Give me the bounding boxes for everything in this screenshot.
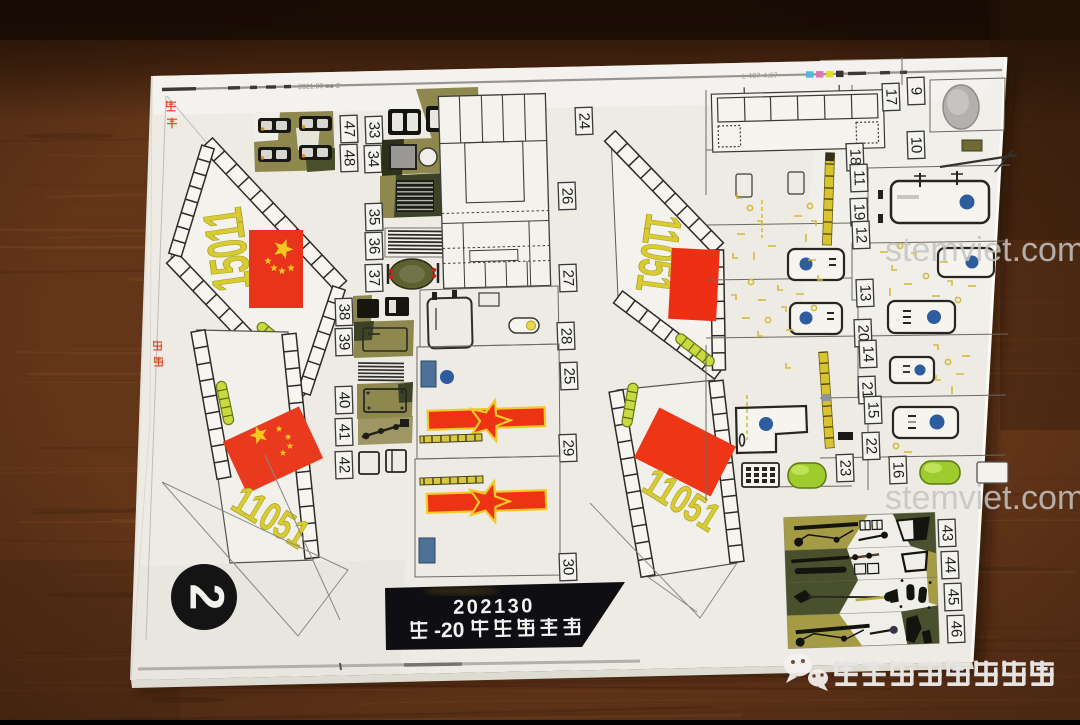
svg-text:42: 42 <box>335 456 353 473</box>
svg-text:40: 40 <box>335 391 353 408</box>
svg-text:11: 11 <box>850 170 868 186</box>
svg-text:23: 23 <box>836 459 854 476</box>
svg-text:43: 43 <box>938 524 956 541</box>
svg-text:16: 16 <box>889 461 907 478</box>
svg-text:10: 10 <box>907 136 925 153</box>
svg-text:44: 44 <box>941 556 959 573</box>
svg-text:stemviet.com: stemviet.com <box>885 479 1080 517</box>
svg-text:15: 15 <box>864 401 882 418</box>
svg-text:45: 45 <box>944 588 962 605</box>
svg-text:2021.30 ■■-2: 2021.30 ■■-2 <box>298 83 340 91</box>
svg-text:35: 35 <box>365 208 383 225</box>
svg-text:24: 24 <box>575 112 593 129</box>
svg-text:9: 9 <box>907 87 924 96</box>
svg-text:2: 2 <box>180 584 233 611</box>
svg-text:33: 33 <box>365 121 383 138</box>
svg-text:202130: 202130 <box>453 595 535 619</box>
svg-text:28: 28 <box>557 327 575 344</box>
svg-text:34: 34 <box>364 150 382 167</box>
svg-text:20: 20 <box>854 324 872 341</box>
svg-text:L 407-4.97: L 407-4.97 <box>742 71 778 81</box>
svg-text:27: 27 <box>559 269 577 286</box>
svg-text:-20: -20 <box>434 619 465 643</box>
svg-text:47: 47 <box>340 120 358 137</box>
svg-text:48: 48 <box>340 149 358 166</box>
svg-text:25: 25 <box>560 367 578 384</box>
svg-text:36: 36 <box>365 237 383 254</box>
svg-text:22: 22 <box>862 437 880 454</box>
svg-text:13: 13 <box>856 284 874 301</box>
svg-text:18: 18 <box>846 148 864 165</box>
svg-text:19: 19 <box>850 203 868 220</box>
svg-text:14: 14 <box>859 345 877 362</box>
svg-text:stemviet.com: stemviet.com <box>885 231 1080 269</box>
svg-text:46: 46 <box>947 620 965 637</box>
svg-text:41: 41 <box>335 423 353 440</box>
svg-text:30: 30 <box>559 558 577 575</box>
svg-text:12: 12 <box>852 226 870 243</box>
svg-text:17: 17 <box>882 88 900 105</box>
svg-text:26: 26 <box>558 187 576 204</box>
svg-text:39: 39 <box>335 333 353 350</box>
svg-text:29: 29 <box>559 439 577 456</box>
svg-text:37: 37 <box>365 269 383 286</box>
svg-text:38: 38 <box>335 303 353 320</box>
